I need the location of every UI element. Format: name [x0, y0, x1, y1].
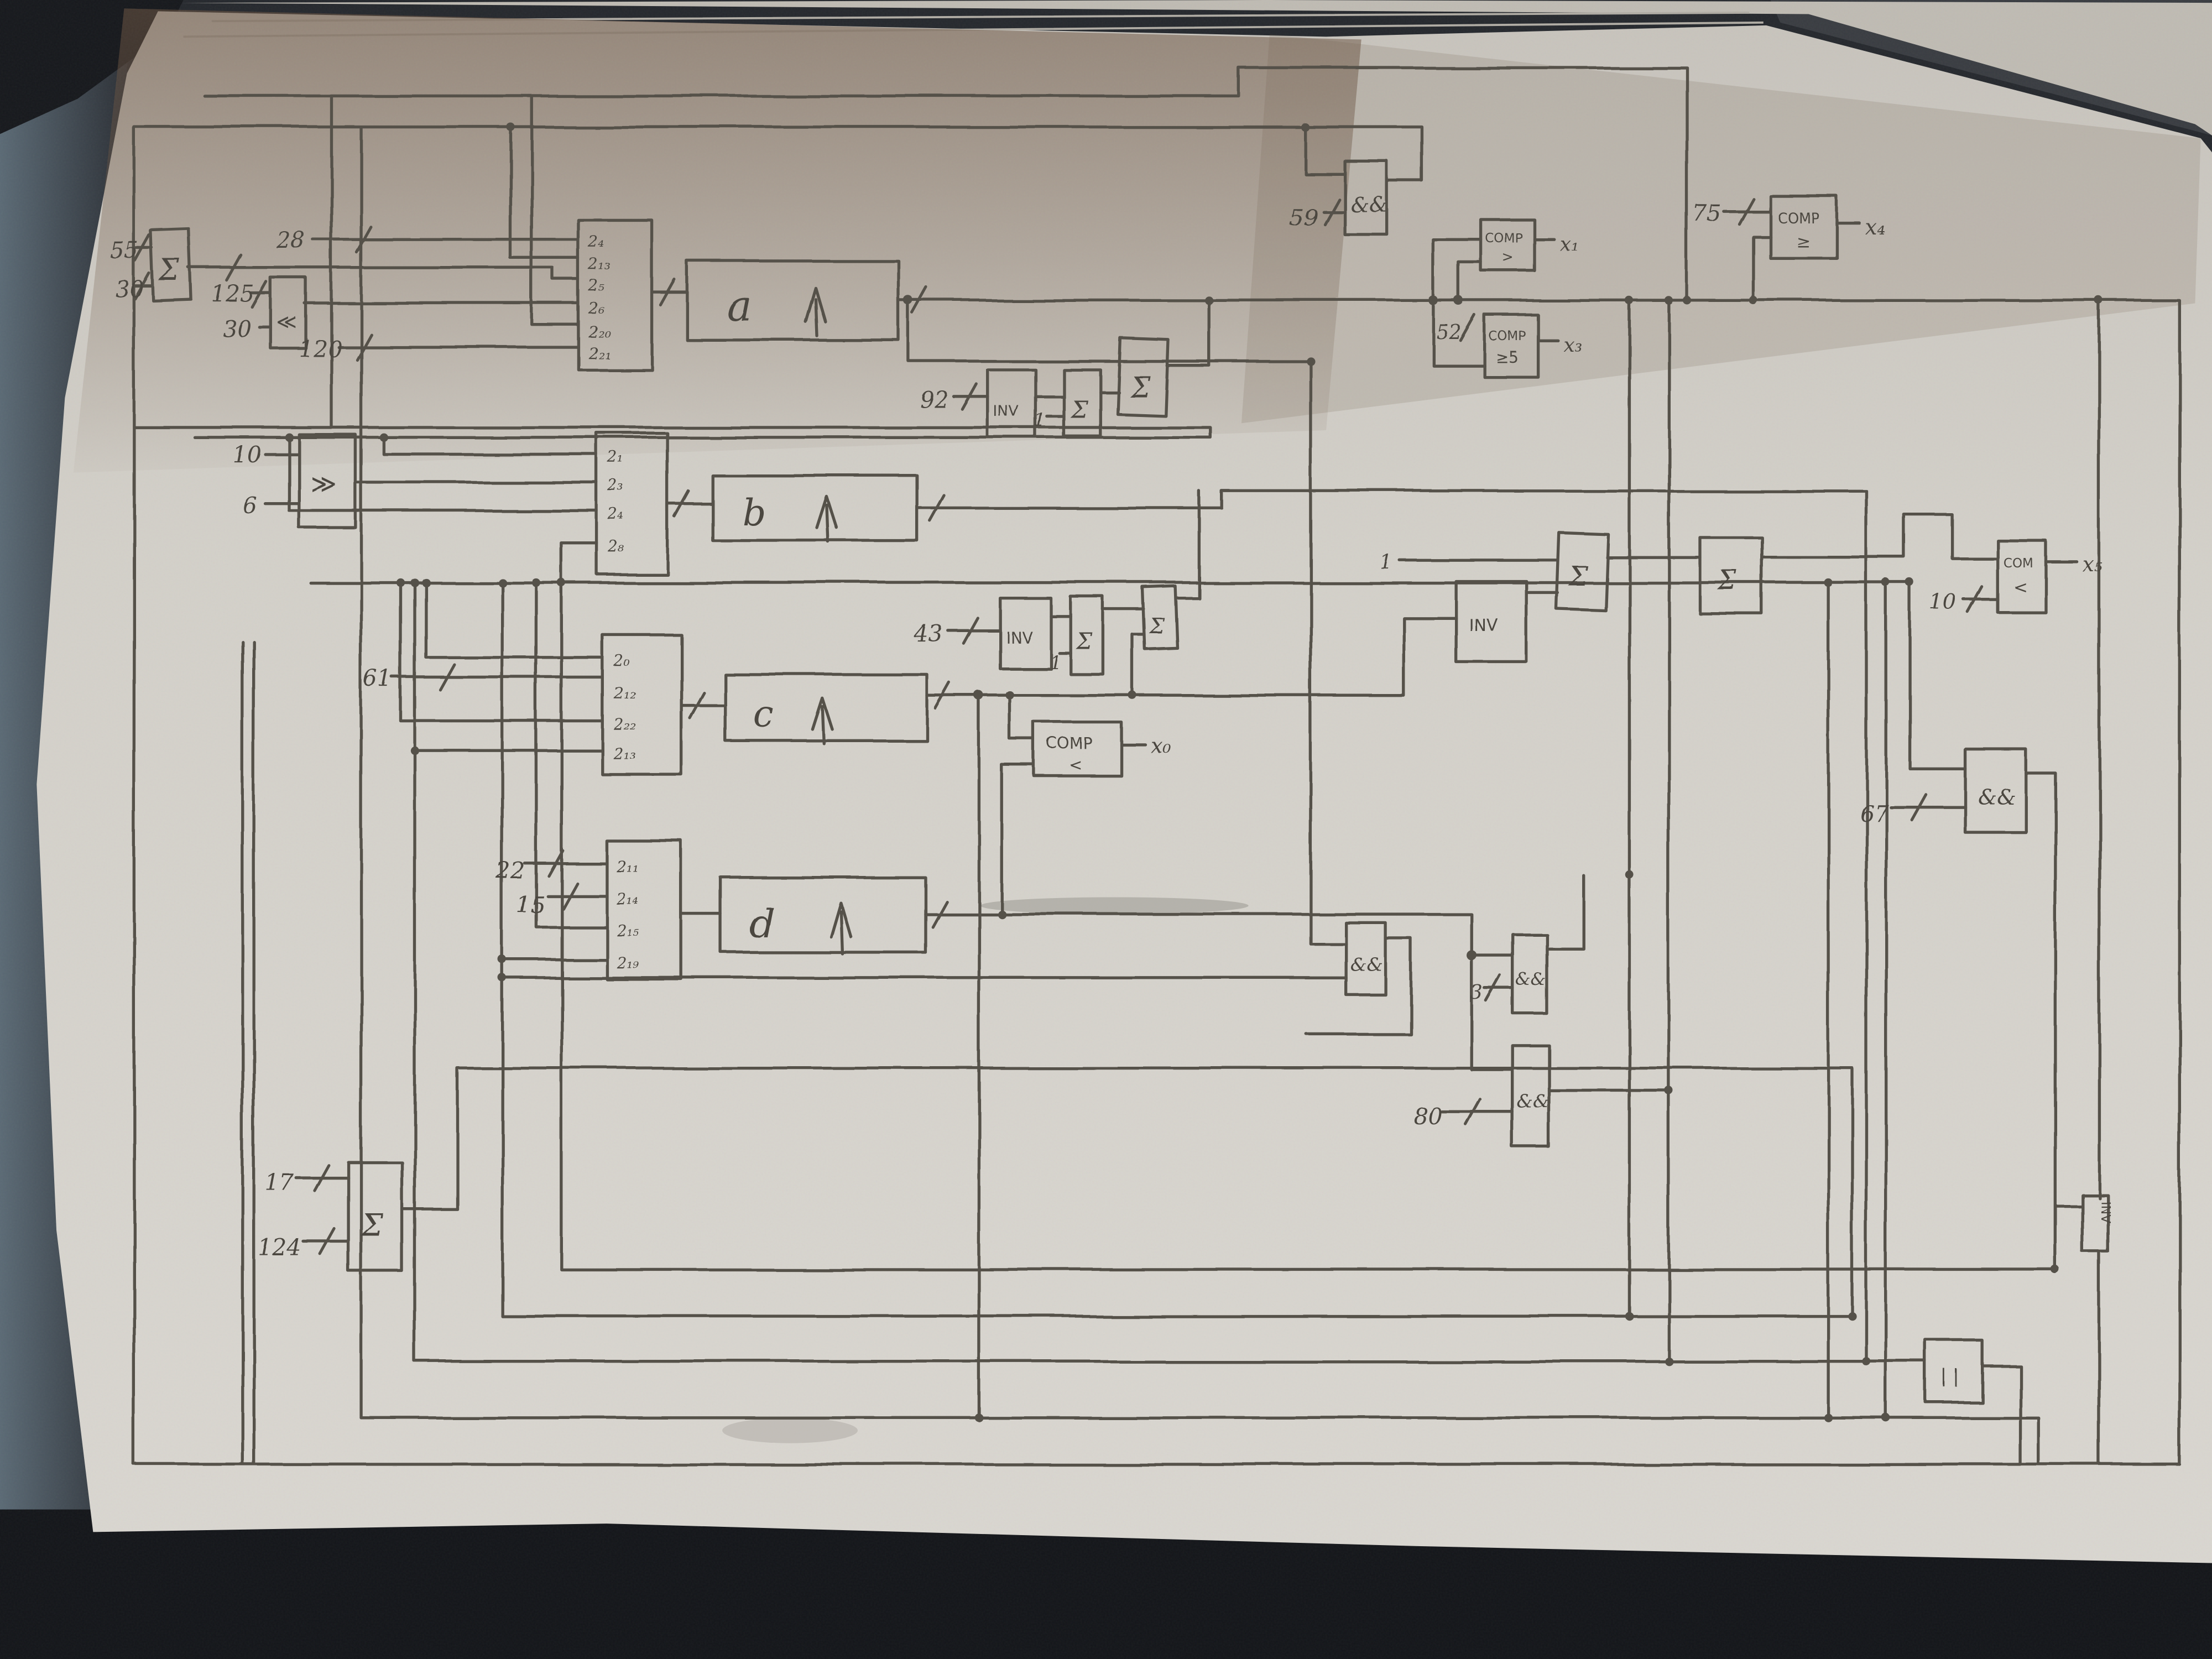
comp-op: < — [1070, 756, 1083, 774]
input-30a: 30 — [116, 276, 144, 303]
reg-d-tap-1: 2₁₄ — [616, 890, 639, 908]
reg-a-tap-0: 2₄ — [588, 232, 604, 251]
output-x0: x₀ — [1151, 734, 1172, 759]
latch-b-label: b — [742, 491, 765, 534]
input-124: 124 — [258, 1234, 301, 1261]
sum-symbol: Σ — [158, 253, 181, 288]
latch-c-label: c — [753, 692, 774, 735]
input-75: 75 — [1693, 201, 1721, 227]
pencil-smudge — [722, 1418, 858, 1443]
reg-d-tap-2: 2₁₅ — [616, 921, 639, 939]
input-80: 80 — [1413, 1103, 1442, 1130]
and-label: && — [1978, 785, 2016, 810]
reg-b-tap-2: 2₄ — [607, 505, 624, 523]
input-67: 67 — [1859, 800, 1888, 827]
input-3: 3 — [1470, 981, 1483, 1004]
reg-c-tap-2: 2₂₂ — [613, 715, 636, 733]
comp-label: COMP — [1777, 210, 1819, 227]
reg-a-tap-3: 2₆ — [588, 299, 604, 317]
input-1b: 1 — [1050, 651, 1061, 673]
sum-symbol: Σ — [360, 1208, 383, 1244]
input-22: 22 — [496, 858, 525, 884]
eraser-smudge — [980, 897, 1249, 914]
input-52: 52 — [1436, 321, 1461, 343]
comp-op: > — [1503, 249, 1514, 266]
reg-b-tap-0: 2₁ — [607, 448, 624, 467]
reg-a-tap-1: 2₁₃ — [588, 255, 611, 273]
comp-op: < — [2013, 577, 2027, 597]
input-1c: 1 — [1380, 551, 1392, 573]
input-15: 15 — [517, 892, 545, 919]
input-30b: 30 — [223, 316, 252, 343]
shift-left-icon: ≪ — [276, 311, 297, 333]
shift-right-icon: ≫ — [310, 468, 337, 498]
input-92: 92 — [920, 387, 948, 413]
comp-label: COMP — [1488, 329, 1526, 343]
inv-label: INV — [1469, 615, 1498, 635]
and-label: && — [1350, 192, 1387, 217]
comp-op: ≥ — [1796, 232, 1810, 251]
photo-of-hand-drawn-diagram: Σ 55 30 28 ≪ 125 30 120 2₄ 2₁₃ 2₅ 2₆ 2₂₀… — [0, 0, 2212, 1659]
inv-label: INV — [2097, 1201, 2111, 1223]
latch-a-label: a — [727, 281, 752, 331]
reg-c-tap-3: 2₁₃ — [613, 744, 636, 763]
reg-d-tap-3: 2₁₉ — [616, 953, 639, 972]
reg-c-tap-0: 2₀ — [613, 651, 630, 670]
reg-b-tap-3: 2₈ — [607, 537, 624, 555]
input-17: 17 — [265, 1170, 294, 1196]
or-bars-label: | | — [1941, 1365, 1959, 1387]
reg-a-tap-4: 2₂₀ — [588, 323, 611, 341]
output-x5: x₅ — [2082, 552, 2103, 577]
sum-symbol: Σ — [1149, 614, 1165, 639]
and-label: && — [1350, 953, 1383, 975]
comp-label: COMP — [1485, 232, 1523, 246]
sum-symbol: Σ — [1129, 371, 1150, 404]
input-28: 28 — [276, 227, 305, 254]
reg-c-tap-1: 2₁₂ — [613, 684, 636, 702]
sum-symbol: Σ — [1075, 628, 1092, 654]
comp-op: ≥5 — [1495, 348, 1518, 367]
and-label: && — [1516, 1091, 1549, 1112]
input-10: 10 — [233, 442, 262, 468]
input-1a: 1 — [1034, 409, 1046, 430]
comp-label: COM — [2003, 556, 2033, 571]
inv-label: INV — [1006, 629, 1032, 647]
reg-b-tap-1: 2₃ — [607, 477, 624, 495]
latch-d-label: d — [749, 900, 775, 946]
sum-symbol: Σ — [1070, 396, 1088, 424]
input-6: 6 — [243, 493, 257, 519]
input-125: 125 — [212, 281, 255, 307]
and-label: && — [1515, 970, 1546, 989]
sum-symbol: Σ — [1717, 565, 1738, 596]
input-120: 120 — [299, 336, 342, 362]
reg-a-tap-2: 2₅ — [588, 276, 604, 295]
input-10b: 10 — [1930, 590, 1957, 615]
input-59: 59 — [1290, 205, 1318, 231]
input-43: 43 — [914, 621, 943, 648]
reg-a-tap-5: 2₂₁ — [588, 344, 611, 362]
reg-d-tap-0: 2₁₁ — [616, 858, 639, 876]
output-x3: x₃ — [1563, 333, 1582, 356]
comp-label: COMP — [1047, 735, 1093, 753]
sum-symbol: Σ — [1568, 561, 1588, 592]
input-55: 55 — [110, 237, 139, 264]
inv-label: INV — [993, 403, 1019, 420]
output-x4: x₄ — [1865, 215, 1885, 239]
output-x1: x₁ — [1560, 233, 1579, 256]
input-61: 61 — [364, 666, 393, 692]
